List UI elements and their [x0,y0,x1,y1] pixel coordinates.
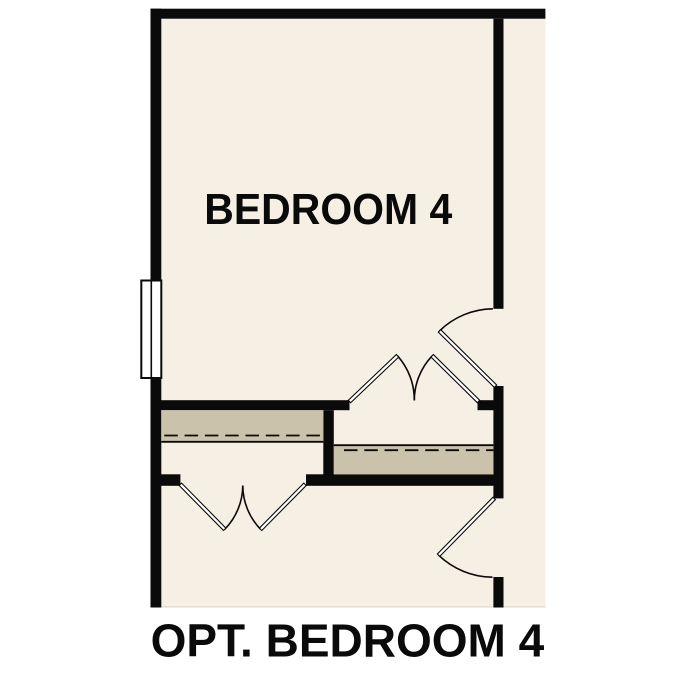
svg-text:OPT. BEDROOM 4: OPT. BEDROOM 4 [151,615,545,667]
svg-text:BEDROOM 4: BEDROOM 4 [204,185,452,234]
